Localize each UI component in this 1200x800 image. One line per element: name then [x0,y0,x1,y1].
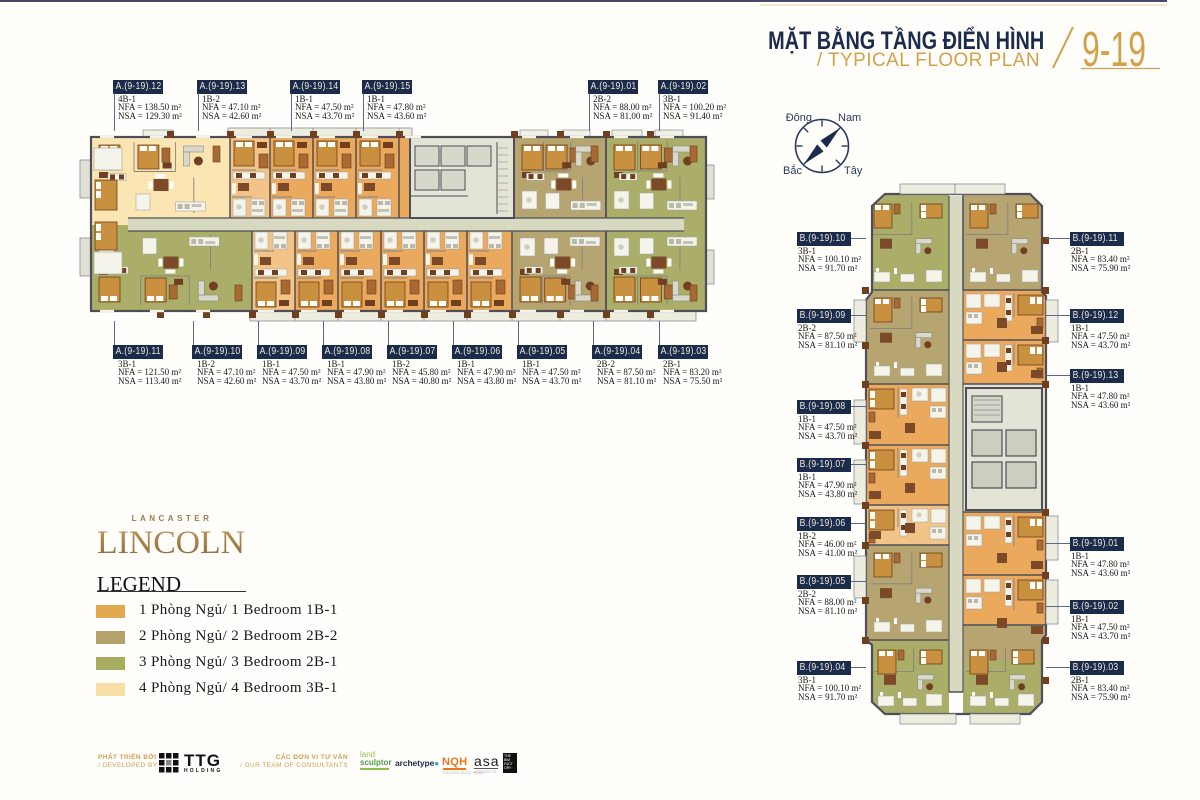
svg-text:LINCOLN: LINCOLN [97,525,245,560]
